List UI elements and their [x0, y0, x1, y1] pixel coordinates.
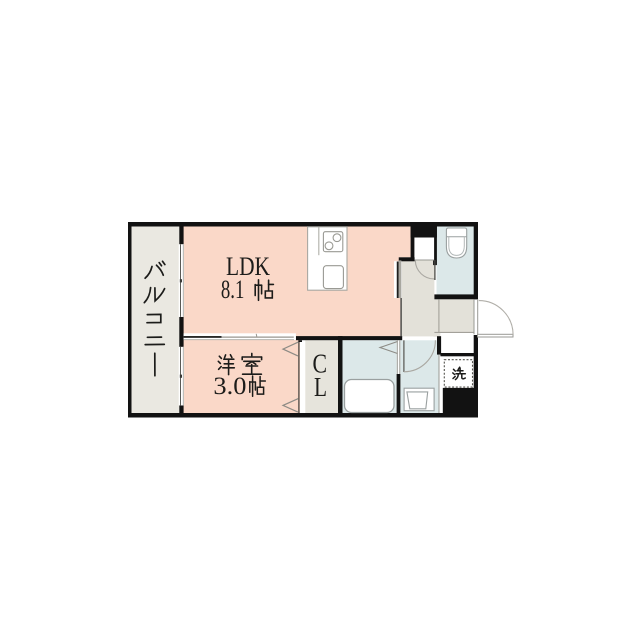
svg-text:8.1: 8.1: [221, 275, 245, 304]
svg-text:3.0: 3.0: [213, 373, 246, 400]
svg-text:L: L: [314, 372, 327, 402]
